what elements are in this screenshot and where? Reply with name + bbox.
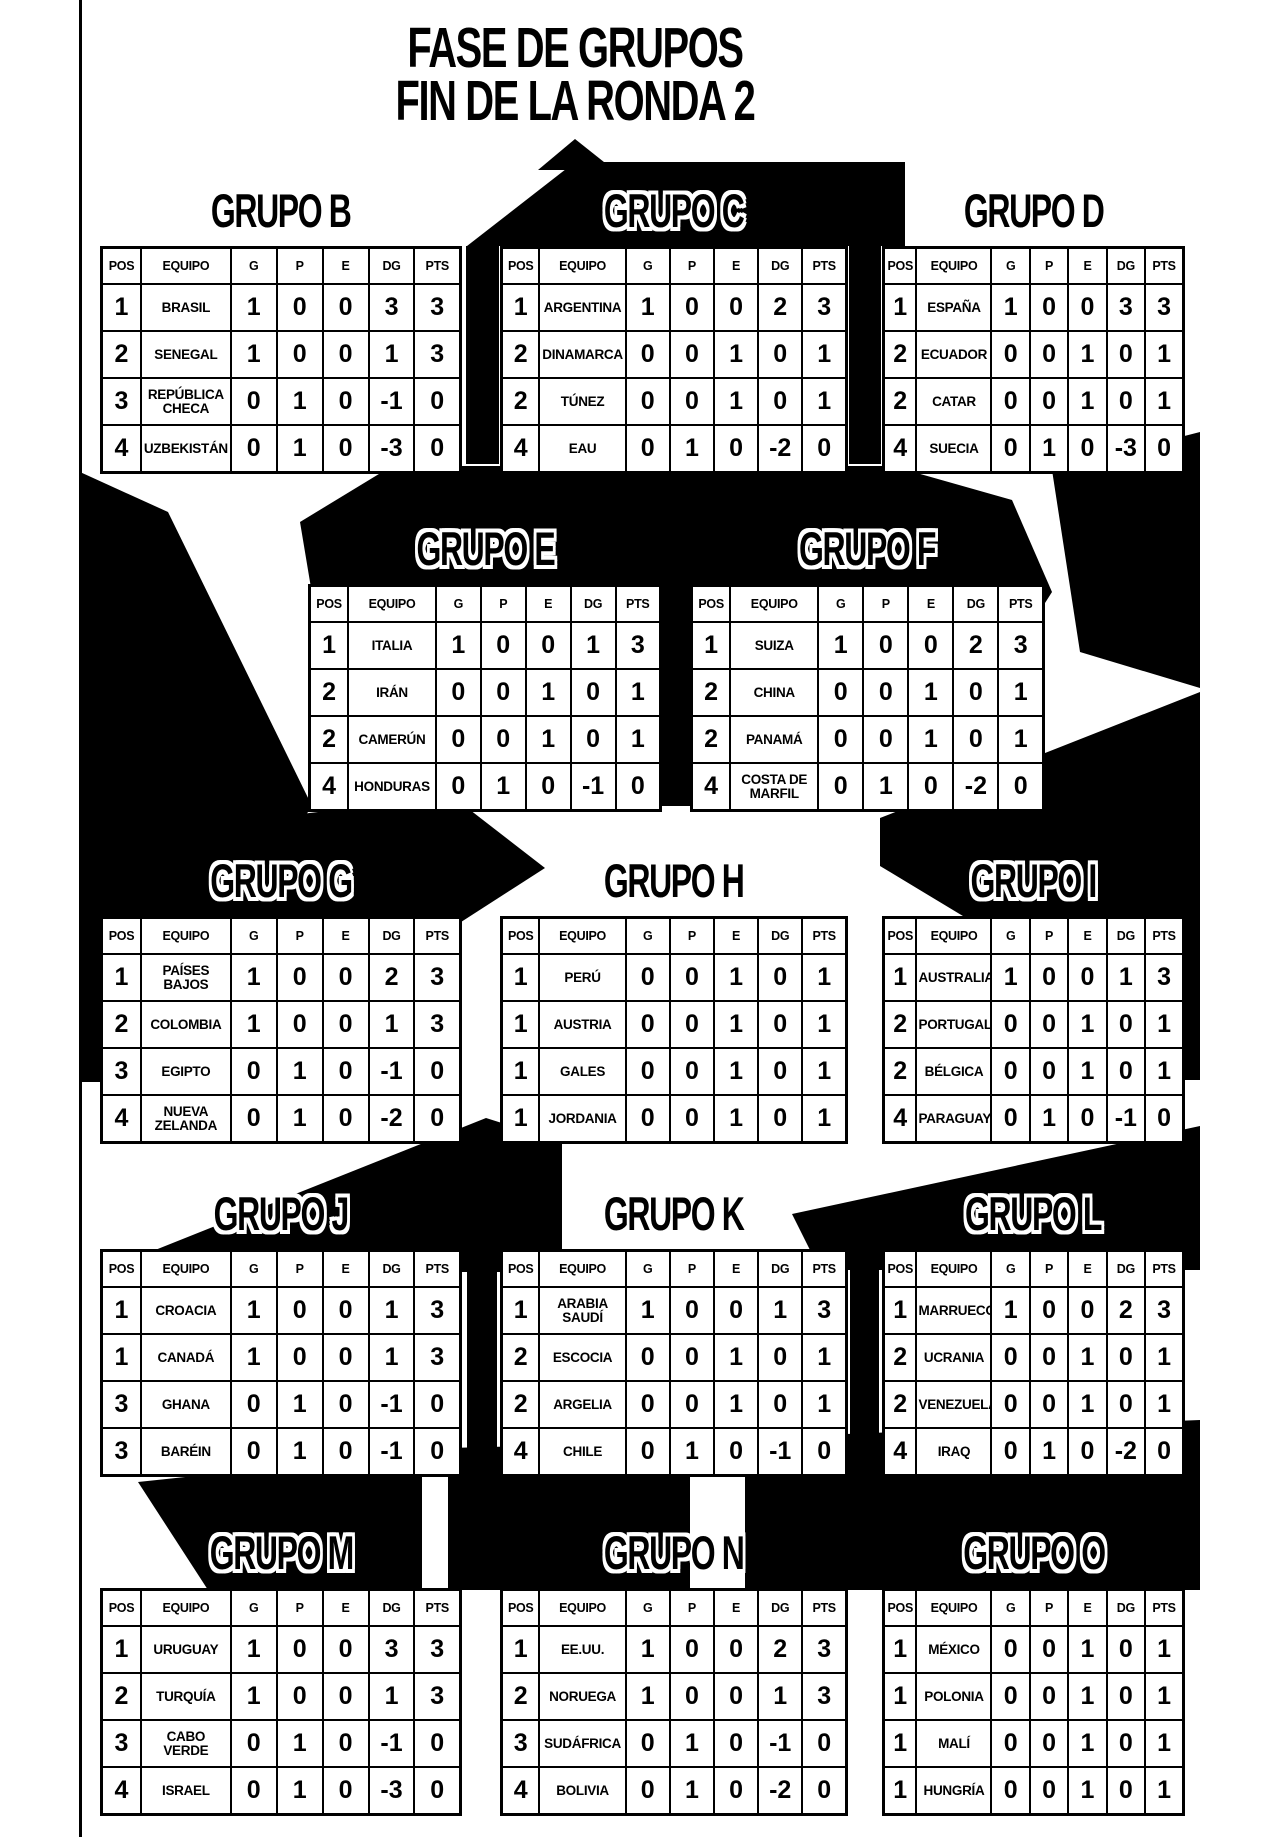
table-row: 1MALÍ00101 bbox=[884, 1720, 1184, 1767]
stat-cell: 0 bbox=[277, 1001, 323, 1048]
col-header-p: P bbox=[1030, 1590, 1068, 1627]
position-cell: 2 bbox=[884, 331, 917, 378]
group-c: GRUPO CPOSEQUIPOGPEDGPTS1ARGENTINA100232… bbox=[500, 183, 848, 474]
stat-cell: 0 bbox=[991, 425, 1029, 473]
stat-cell: 1 bbox=[1068, 1767, 1106, 1815]
col-header-dg: DG bbox=[1107, 918, 1145, 955]
stat-cell: 0 bbox=[758, 331, 802, 378]
stat-cell: 1 bbox=[369, 1334, 415, 1381]
stat-cell: 0 bbox=[991, 1381, 1029, 1428]
table-row: 2SENEGAL10013 bbox=[102, 331, 461, 378]
header-row: POSEQUIPOGPEDGPTS bbox=[502, 248, 847, 285]
position-cell: 2 bbox=[102, 331, 141, 378]
table-row: 4UZBEKISTÁN010-30 bbox=[102, 425, 461, 473]
table-row: 4IRAQ010-20 bbox=[884, 1428, 1184, 1476]
position-cell: 4 bbox=[310, 763, 349, 811]
table-row: 2IRÁN00101 bbox=[310, 669, 661, 716]
stat-cell: 1 bbox=[436, 622, 481, 669]
stat-cell: 0 bbox=[1030, 1334, 1068, 1381]
stat-cell: 3 bbox=[414, 954, 460, 1001]
stat-cell: 1 bbox=[616, 669, 661, 716]
stat-cell: 1 bbox=[626, 1287, 670, 1334]
col-header-p: P bbox=[670, 918, 714, 955]
stat-cell: 1 bbox=[714, 1095, 758, 1143]
table-row: 2VENEZUELA00101 bbox=[884, 1381, 1184, 1428]
col-header-e: E bbox=[1068, 918, 1106, 955]
stat-cell: 0 bbox=[1030, 1720, 1068, 1767]
table-row: 4ISRAEL010-30 bbox=[102, 1767, 461, 1815]
stat-cell: 0 bbox=[626, 1720, 670, 1767]
stat-cell: -2 bbox=[369, 1095, 415, 1143]
table-row: 2CHINA00101 bbox=[692, 669, 1044, 716]
table-row: 4EAU010-20 bbox=[502, 425, 847, 473]
stat-cell: -1 bbox=[369, 1720, 415, 1767]
table-row: 2TÚNEZ00101 bbox=[502, 378, 847, 425]
team-name-cell: SUDÁFRICA bbox=[539, 1720, 625, 1767]
table-row: 4NUEVA ZELANDA010-20 bbox=[102, 1095, 461, 1143]
position-cell: 1 bbox=[310, 622, 349, 669]
stat-cell: 0 bbox=[863, 716, 908, 763]
stat-cell: 0 bbox=[414, 1048, 460, 1095]
col-header-pos: POS bbox=[502, 1590, 540, 1627]
stat-cell: 0 bbox=[626, 425, 670, 473]
col-header-dg: DG bbox=[369, 1251, 415, 1288]
stat-cell: -1 bbox=[369, 1048, 415, 1095]
position-cell: 3 bbox=[102, 1428, 141, 1476]
standings-table: POSEQUIPOGPEDGPTS1BRASIL100332SENEGAL100… bbox=[100, 246, 462, 474]
col-header-g: G bbox=[991, 1590, 1029, 1627]
stat-cell: 1 bbox=[1145, 1626, 1183, 1673]
team-name-cell: HUNGRÍA bbox=[916, 1767, 991, 1815]
col-header-g: G bbox=[626, 1590, 670, 1627]
col-header-e: E bbox=[323, 1590, 369, 1627]
col-header-p: P bbox=[481, 586, 526, 623]
stat-cell: 1 bbox=[277, 1095, 323, 1143]
stat-cell: 0 bbox=[414, 1095, 460, 1143]
position-cell: 1 bbox=[102, 954, 141, 1001]
col-header-pos: POS bbox=[692, 586, 731, 623]
team-name-cell: CAMERÚN bbox=[348, 716, 436, 763]
header-row: POSEQUIPOGPEDGPTS bbox=[102, 1590, 461, 1627]
table-row: 1ARABIA SAUDÍ10013 bbox=[502, 1287, 847, 1334]
stat-cell: 0 bbox=[818, 669, 863, 716]
stat-cell: 0 bbox=[323, 1287, 369, 1334]
col-header-p: P bbox=[1030, 1251, 1068, 1288]
table-row: 1PAÍSES BAJOS10023 bbox=[102, 954, 461, 1001]
position-cell: 4 bbox=[884, 1095, 917, 1143]
col-header-equipo: EQUIPO bbox=[916, 1590, 991, 1627]
stat-cell: 1 bbox=[802, 1334, 846, 1381]
col-header-pos: POS bbox=[884, 1590, 917, 1627]
stat-cell: 0 bbox=[863, 622, 908, 669]
stat-cell: 1 bbox=[526, 669, 571, 716]
table-row: 3BARÉIN010-10 bbox=[102, 1428, 461, 1476]
col-header-pts: PTS bbox=[414, 1590, 460, 1627]
position-cell: 1 bbox=[102, 1626, 141, 1673]
stat-cell: 0 bbox=[323, 331, 369, 378]
stat-cell: 3 bbox=[414, 1001, 460, 1048]
col-header-g: G bbox=[231, 918, 277, 955]
position-cell: 1 bbox=[502, 1001, 540, 1048]
position-cell: 4 bbox=[502, 1428, 540, 1476]
team-name-cell: EAU bbox=[539, 425, 625, 473]
stat-cell: 2 bbox=[758, 284, 802, 331]
table-row: 4SUECIA010-30 bbox=[884, 425, 1184, 473]
stat-cell: 0 bbox=[1107, 1334, 1145, 1381]
stat-cell: 0 bbox=[1030, 1287, 1068, 1334]
stat-cell: 1 bbox=[1068, 1626, 1106, 1673]
table-row: 4PARAGUAY010-10 bbox=[884, 1095, 1184, 1143]
col-header-pos: POS bbox=[310, 586, 349, 623]
stat-cell: 0 bbox=[802, 425, 846, 473]
team-name-cell: SUIZA bbox=[730, 622, 818, 669]
stat-cell: -3 bbox=[1107, 425, 1145, 473]
stat-cell: 0 bbox=[670, 284, 714, 331]
header-row: POSEQUIPOGPEDGPTS bbox=[102, 918, 461, 955]
stat-cell: 0 bbox=[991, 1626, 1029, 1673]
position-cell: 1 bbox=[884, 1767, 917, 1815]
group-j: GRUPO JPOSEQUIPOGPEDGPTS1CROACIA100131CA… bbox=[100, 1186, 462, 1477]
position-cell: 2 bbox=[884, 1001, 917, 1048]
team-name-cell: IRÁN bbox=[348, 669, 436, 716]
standings-table: POSEQUIPOGPEDGPTS1PAÍSES BAJOS100232COLO… bbox=[100, 916, 462, 1144]
col-header-equipo: EQUIPO bbox=[730, 586, 818, 623]
table-row: 1MÉXICO00101 bbox=[884, 1626, 1184, 1673]
col-header-p: P bbox=[1030, 248, 1068, 285]
header-row: POSEQUIPOGPEDGPTS bbox=[692, 586, 1044, 623]
stat-cell: 0 bbox=[670, 1334, 714, 1381]
table-row: 3EGIPTO010-10 bbox=[102, 1048, 461, 1095]
table-row: 1EE.UU.10023 bbox=[502, 1626, 847, 1673]
team-name-cell: EGIPTO bbox=[141, 1048, 231, 1095]
col-header-e: E bbox=[1068, 248, 1106, 285]
col-header-dg: DG bbox=[758, 248, 802, 285]
group-title: GRUPO O bbox=[882, 1525, 1185, 1581]
stat-cell: 0 bbox=[714, 1428, 758, 1476]
stat-cell: 2 bbox=[369, 954, 415, 1001]
team-name-cell: UCRANIA bbox=[916, 1334, 991, 1381]
team-name-cell: PARAGUAY bbox=[916, 1095, 991, 1143]
ball-panel-gap-bc bbox=[466, 246, 499, 464]
col-header-pts: PTS bbox=[1145, 918, 1183, 955]
position-cell: 4 bbox=[102, 1767, 141, 1815]
stat-cell: 1 bbox=[714, 331, 758, 378]
group-title: GRUPO J bbox=[100, 1186, 462, 1242]
team-name-cell: MÉXICO bbox=[916, 1626, 991, 1673]
team-name-cell: CHILE bbox=[539, 1428, 625, 1476]
stat-cell: 0 bbox=[626, 1048, 670, 1095]
table-row: 1CANADÁ10013 bbox=[102, 1334, 461, 1381]
stat-cell: 0 bbox=[991, 1673, 1029, 1720]
group-title-text: GRUPO L bbox=[965, 1186, 1101, 1242]
stat-cell: 0 bbox=[714, 425, 758, 473]
stat-cell: 0 bbox=[758, 1001, 802, 1048]
team-name-cell: ISRAEL bbox=[141, 1767, 231, 1815]
col-header-pts: PTS bbox=[802, 1251, 846, 1288]
col-header-e: E bbox=[714, 918, 758, 955]
stat-cell: 0 bbox=[414, 1381, 460, 1428]
group-h: GRUPO HPOSEQUIPOGPEDGPTS1PERÚ001011AUSTR… bbox=[500, 853, 848, 1144]
stat-cell: 1 bbox=[1145, 1673, 1183, 1720]
group-title: GRUPO G bbox=[100, 853, 462, 909]
stat-cell: -1 bbox=[1107, 1095, 1145, 1143]
team-name-cell: CATAR bbox=[916, 378, 991, 425]
stat-cell: 0 bbox=[526, 622, 571, 669]
stat-cell: 0 bbox=[323, 425, 369, 473]
col-header-pos: POS bbox=[884, 918, 917, 955]
group-title: GRUPO N bbox=[500, 1525, 848, 1581]
col-header-pts: PTS bbox=[802, 248, 846, 285]
stat-cell: 0 bbox=[231, 425, 277, 473]
stat-cell: 1 bbox=[231, 954, 277, 1001]
stat-cell: 1 bbox=[991, 954, 1029, 1001]
col-header-e: E bbox=[526, 586, 571, 623]
team-name-cell: ARABIA SAUDÍ bbox=[539, 1287, 625, 1334]
stat-cell: 1 bbox=[1068, 378, 1106, 425]
col-header-pos: POS bbox=[884, 1251, 917, 1288]
stat-cell: 3 bbox=[369, 284, 415, 331]
group-e: GRUPO EPOSEQUIPOGPEDGPTS1ITALIA100132IRÁ… bbox=[308, 521, 662, 812]
team-name-cell: CANADÁ bbox=[141, 1334, 231, 1381]
stat-cell: 0 bbox=[277, 1626, 323, 1673]
stat-cell: 1 bbox=[1068, 331, 1106, 378]
stat-cell: 0 bbox=[231, 378, 277, 425]
team-name-cell: GALES bbox=[539, 1048, 625, 1095]
stat-cell: 0 bbox=[571, 716, 616, 763]
stat-cell: 0 bbox=[414, 1720, 460, 1767]
group-title-text: GRUPO I bbox=[971, 853, 1096, 909]
stat-cell: 0 bbox=[323, 284, 369, 331]
stat-cell: 0 bbox=[1030, 1767, 1068, 1815]
stat-cell: 1 bbox=[802, 1095, 846, 1143]
stat-cell: 1 bbox=[758, 1673, 802, 1720]
col-header-g: G bbox=[991, 1251, 1029, 1288]
stat-cell: 0 bbox=[1107, 1767, 1145, 1815]
stat-cell: 3 bbox=[414, 331, 460, 378]
team-name-cell: CHINA bbox=[730, 669, 818, 716]
table-row: 2UCRANIA00101 bbox=[884, 1334, 1184, 1381]
col-header-dg: DG bbox=[369, 248, 415, 285]
group-g: GRUPO GPOSEQUIPOGPEDGPTS1PAÍSES BAJOS100… bbox=[100, 853, 462, 1144]
stat-cell: 1 bbox=[1030, 1095, 1068, 1143]
stat-cell: 1 bbox=[758, 1287, 802, 1334]
stat-cell: 3 bbox=[369, 1626, 415, 1673]
stat-cell: 1 bbox=[1145, 1001, 1183, 1048]
stat-cell: 0 bbox=[908, 622, 953, 669]
stat-cell: 0 bbox=[323, 1626, 369, 1673]
col-header-equipo: EQUIPO bbox=[539, 248, 625, 285]
ball-panel-gap-cd bbox=[849, 246, 881, 464]
col-header-dg: DG bbox=[953, 586, 998, 623]
stat-cell: 0 bbox=[714, 1626, 758, 1673]
stat-cell: 0 bbox=[1145, 1095, 1183, 1143]
stat-cell: 3 bbox=[414, 1673, 460, 1720]
team-name-cell: HONDURAS bbox=[348, 763, 436, 811]
position-cell: 4 bbox=[884, 425, 917, 473]
stat-cell: 0 bbox=[758, 1381, 802, 1428]
col-header-dg: DG bbox=[369, 1590, 415, 1627]
team-name-cell: SENEGAL bbox=[141, 331, 231, 378]
stat-cell: 0 bbox=[1107, 1048, 1145, 1095]
stat-cell: 0 bbox=[277, 331, 323, 378]
group-title-text: GRUPO B bbox=[211, 183, 351, 239]
group-title: GRUPO E bbox=[308, 521, 662, 577]
stat-cell: -3 bbox=[369, 1767, 415, 1815]
table-row: 1SUIZA10023 bbox=[692, 622, 1044, 669]
col-header-p: P bbox=[863, 586, 908, 623]
col-header-pts: PTS bbox=[998, 586, 1043, 623]
group-title-text: GRUPO D bbox=[964, 183, 1104, 239]
stat-cell: 1 bbox=[802, 331, 846, 378]
stat-cell: 0 bbox=[1107, 378, 1145, 425]
stat-cell: -2 bbox=[758, 1767, 802, 1815]
stat-cell: 0 bbox=[802, 1720, 846, 1767]
col-header-pts: PTS bbox=[802, 918, 846, 955]
stat-cell: 0 bbox=[323, 1048, 369, 1095]
stat-cell: 0 bbox=[1145, 1428, 1183, 1476]
position-cell: 4 bbox=[502, 1767, 540, 1815]
stat-cell: 1 bbox=[1068, 1673, 1106, 1720]
team-name-cell: BRASIL bbox=[141, 284, 231, 331]
stat-cell: 0 bbox=[277, 1287, 323, 1334]
col-header-equipo: EQUIPO bbox=[141, 1251, 231, 1288]
col-header-equipo: EQUIPO bbox=[141, 918, 231, 955]
stat-cell: 1 bbox=[277, 1428, 323, 1476]
table-row: 1PERÚ00101 bbox=[502, 954, 847, 1001]
stat-cell: 1 bbox=[277, 1767, 323, 1815]
group-title-text: GRUPO C bbox=[604, 183, 744, 239]
col-header-e: E bbox=[323, 1251, 369, 1288]
group-o: GRUPO OPOSEQUIPOGPEDGPTS1MÉXICO001011POL… bbox=[882, 1525, 1185, 1816]
stat-cell: -1 bbox=[758, 1428, 802, 1476]
standings-table: POSEQUIPOGPEDGPTS1SUIZA100232CHINA001012… bbox=[690, 584, 1045, 812]
stat-cell: -2 bbox=[758, 425, 802, 473]
header-row: POSEQUIPOGPEDGPTS bbox=[884, 1590, 1184, 1627]
stat-cell: 1 bbox=[231, 1626, 277, 1673]
team-name-cell: URUGUAY bbox=[141, 1626, 231, 1673]
stat-cell: 0 bbox=[1030, 1001, 1068, 1048]
group-title: GRUPO C bbox=[500, 183, 848, 239]
position-cell: 2 bbox=[102, 1001, 141, 1048]
col-header-e: E bbox=[714, 248, 758, 285]
stat-cell: 3 bbox=[802, 1673, 846, 1720]
standings-table: POSEQUIPOGPEDGPTS1ARABIA SAUDÍ100132ESCO… bbox=[500, 1249, 848, 1477]
table-row: 1GALES00101 bbox=[502, 1048, 847, 1095]
stat-cell: -2 bbox=[953, 763, 998, 811]
stat-cell: 0 bbox=[1030, 378, 1068, 425]
team-name-cell: CROACIA bbox=[141, 1287, 231, 1334]
table-row: 2TURQUÍA10013 bbox=[102, 1673, 461, 1720]
col-header-pos: POS bbox=[502, 1251, 540, 1288]
stat-cell: 0 bbox=[323, 1720, 369, 1767]
position-cell: 3 bbox=[502, 1720, 540, 1767]
stat-cell: 0 bbox=[436, 763, 481, 811]
stat-cell: 1 bbox=[231, 1001, 277, 1048]
table-row: 1CROACIA10013 bbox=[102, 1287, 461, 1334]
stat-cell: 1 bbox=[1068, 1381, 1106, 1428]
stat-cell: 0 bbox=[802, 1767, 846, 1815]
table-row: 2BÉLGICA00101 bbox=[884, 1048, 1184, 1095]
stat-cell: 1 bbox=[1145, 378, 1183, 425]
position-cell: 1 bbox=[884, 1287, 917, 1334]
col-header-g: G bbox=[231, 1251, 277, 1288]
stat-cell: 0 bbox=[714, 1673, 758, 1720]
group-n: GRUPO NPOSEQUIPOGPEDGPTS1EE.UU.100232NOR… bbox=[500, 1525, 848, 1816]
stat-cell: 1 bbox=[277, 425, 323, 473]
group-l: GRUPO LPOSEQUIPOGPEDGPTS1MARRUECOS100232… bbox=[882, 1186, 1185, 1477]
table-row: 4BOLIVIA010-20 bbox=[502, 1767, 847, 1815]
team-name-cell: BARÉIN bbox=[141, 1428, 231, 1476]
header-row: POSEQUIPOGPEDGPTS bbox=[884, 248, 1184, 285]
team-name-cell: TÚNEZ bbox=[539, 378, 625, 425]
col-header-pos: POS bbox=[102, 1251, 141, 1288]
stat-cell: 1 bbox=[1068, 1720, 1106, 1767]
team-name-cell: ECUADOR bbox=[916, 331, 991, 378]
standings-table: POSEQUIPOGPEDGPTS1ESPAÑA100332ECUADOR001… bbox=[882, 246, 1185, 474]
table-row: 4COSTA DE MARFIL010-20 bbox=[692, 763, 1044, 811]
stat-cell: 0 bbox=[991, 378, 1029, 425]
stat-cell: -1 bbox=[369, 1428, 415, 1476]
table-row: 2CAMERÚN00101 bbox=[310, 716, 661, 763]
team-name-cell: DINAMARCA bbox=[539, 331, 625, 378]
col-header-p: P bbox=[1030, 918, 1068, 955]
group-title-text: GRUPO N bbox=[604, 1525, 744, 1581]
team-name-cell: MARRUECOS bbox=[916, 1287, 991, 1334]
page-title: FASE DE GRUPOS FIN DE LA RONDA 2 bbox=[75, 22, 1075, 128]
position-cell: 2 bbox=[692, 716, 731, 763]
stat-cell: 3 bbox=[802, 284, 846, 331]
col-header-p: P bbox=[670, 1590, 714, 1627]
position-cell: 2 bbox=[884, 1334, 917, 1381]
stat-cell: -1 bbox=[758, 1720, 802, 1767]
position-cell: 2 bbox=[502, 1334, 540, 1381]
stat-cell: 0 bbox=[670, 954, 714, 1001]
col-header-pts: PTS bbox=[1145, 1590, 1183, 1627]
stat-cell: 1 bbox=[277, 1048, 323, 1095]
stat-cell: 1 bbox=[1068, 1048, 1106, 1095]
page-left-edge-rule bbox=[79, 0, 82, 1837]
stat-cell: 0 bbox=[802, 1428, 846, 1476]
stat-cell: -1 bbox=[571, 763, 616, 811]
stat-cell: 3 bbox=[1145, 954, 1183, 1001]
table-row: 1URUGUAY10033 bbox=[102, 1626, 461, 1673]
stat-cell: 0 bbox=[670, 1626, 714, 1673]
col-header-e: E bbox=[1068, 1251, 1106, 1288]
group-d: GRUPO DPOSEQUIPOGPEDGPTS1ESPAÑA100332ECU… bbox=[882, 183, 1185, 474]
stat-cell: 1 bbox=[714, 1001, 758, 1048]
stat-cell: 0 bbox=[1107, 1673, 1145, 1720]
stat-cell: 0 bbox=[626, 1767, 670, 1815]
standings-table: POSEQUIPOGPEDGPTS1URUGUAY100332TURQUÍA10… bbox=[100, 1588, 462, 1816]
stat-cell: 0 bbox=[323, 1673, 369, 1720]
col-header-pos: POS bbox=[502, 918, 540, 955]
standings-table: POSEQUIPOGPEDGPTS1CROACIA100131CANADÁ100… bbox=[100, 1249, 462, 1477]
standings-table: POSEQUIPOGPEDGPTS1EE.UU.100232NORUEGA100… bbox=[500, 1588, 848, 1816]
stat-cell: 0 bbox=[626, 1334, 670, 1381]
stat-cell: 0 bbox=[758, 1095, 802, 1143]
stat-cell: 0 bbox=[626, 331, 670, 378]
group-title: GRUPO H bbox=[500, 853, 848, 909]
group-m: GRUPO MPOSEQUIPOGPEDGPTS1URUGUAY100332TU… bbox=[100, 1525, 462, 1816]
stat-cell: 0 bbox=[818, 716, 863, 763]
stat-cell: 0 bbox=[991, 1001, 1029, 1048]
position-cell: 4 bbox=[102, 1095, 141, 1143]
stat-cell: 1 bbox=[571, 622, 616, 669]
stat-cell: 0 bbox=[323, 1428, 369, 1476]
position-cell: 1 bbox=[502, 954, 540, 1001]
stat-cell: 0 bbox=[626, 954, 670, 1001]
stat-cell: 0 bbox=[481, 716, 526, 763]
